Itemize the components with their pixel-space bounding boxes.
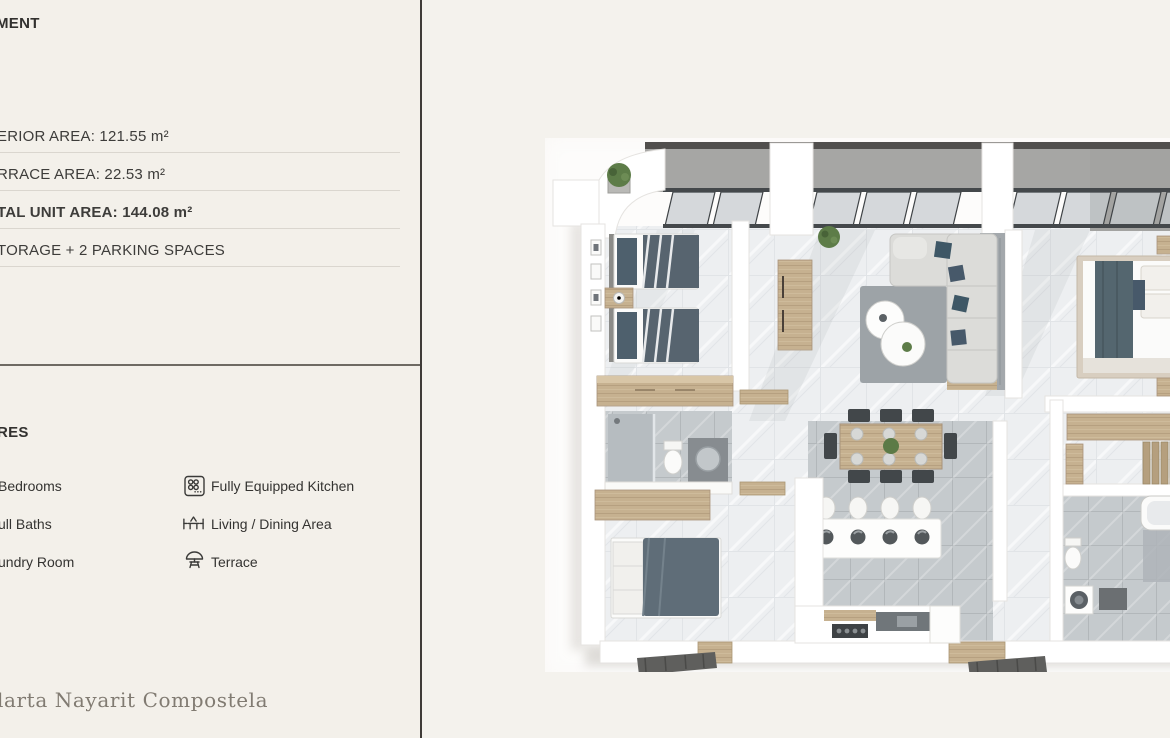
tv-console [778,260,812,350]
dresser [597,376,733,406]
spec-total-area: TAL UNIT AREA: 144.08 m² [0,204,407,221]
page-title: MENT [0,15,40,32]
nightstand [1157,236,1170,254]
centerpiece-plant [883,438,899,454]
living-plant [818,226,840,248]
features-heading: RES [0,424,29,441]
feature-bedrooms: Bedrooms [0,478,168,494]
spec-storage-parking: TORAGE + 2 PARKING SPACES [0,242,407,259]
spec-interior-area: ERIOR AREA: 121.55 m² [0,128,407,145]
section-divider [0,364,421,366]
terrace-plant [607,163,631,193]
spec-divider [0,266,400,267]
feature-laundry-room: undry Room [0,554,168,570]
umbrella-table-icon [182,549,207,573]
master-bedroom [1077,236,1170,396]
dining-table-icon [181,511,206,535]
stove-icon [182,474,207,498]
laundry-shelf [1099,588,1127,610]
spec-divider [0,152,400,153]
panel-divider [420,0,422,738]
closet [595,490,710,520]
brand-name: larta Nayarit Compostela [0,688,268,712]
spec-terrace-area: RRACE AREA: 22.53 m² [0,166,407,183]
feature-kitchen-label: Fully Equipped Kitchen [211,478,354,494]
spec-divider [0,228,400,229]
feature-living-dining-label: Living / Dining Area [211,516,332,532]
floor-plan-render [545,138,1170,672]
nightstand [1157,378,1170,396]
spec-divider [0,190,400,191]
brochure-page: MENT ERIOR AREA: 121.55 m² RRACE AREA: 2… [0,0,1170,738]
feature-full-baths: ull Baths [0,516,168,532]
feature-terrace-label: Terrace [211,554,258,570]
